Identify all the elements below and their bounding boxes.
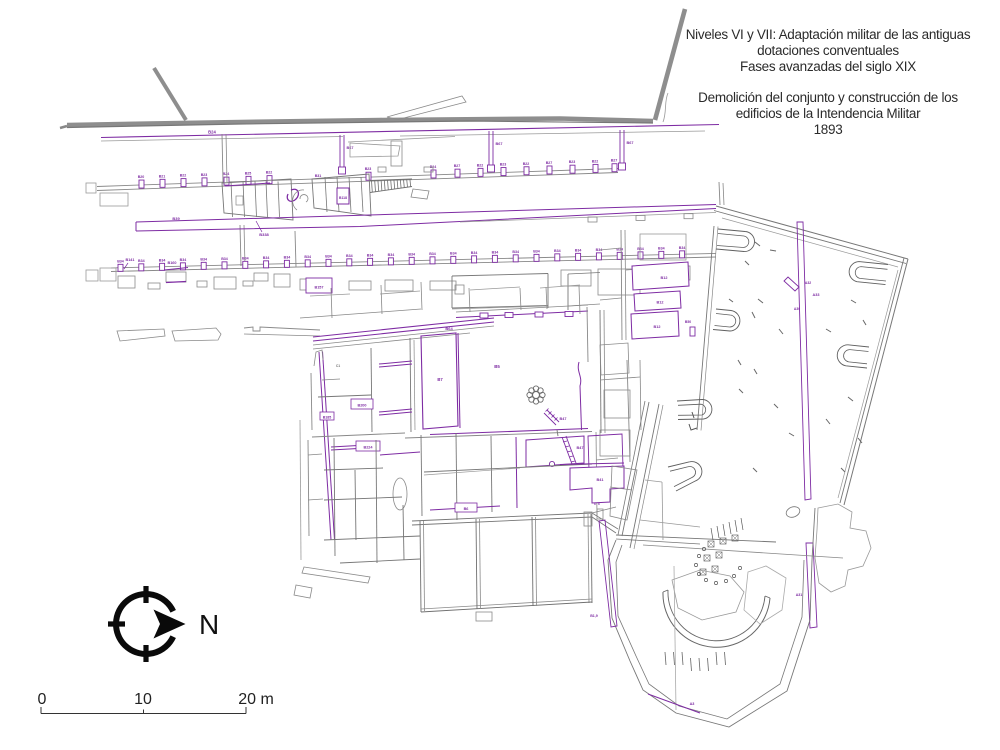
svg-text:B34: B34 bbox=[512, 250, 519, 254]
svg-text:Fases avanzadas del siglo XIX: Fases avanzadas del siglo XIX bbox=[740, 59, 916, 74]
svg-text:B21: B21 bbox=[159, 174, 166, 178]
svg-text:B34: B34 bbox=[221, 257, 228, 261]
svg-text:B224: B224 bbox=[363, 446, 373, 450]
svg-text:B34: B34 bbox=[471, 251, 478, 255]
svg-text:Demolición del conjunto y cons: Demolición del conjunto y construcción d… bbox=[698, 90, 958, 105]
svg-text:0: 0 bbox=[38, 691, 47, 708]
svg-text:10: 10 bbox=[134, 691, 152, 708]
svg-text:B31: B31 bbox=[315, 174, 322, 178]
svg-text:B67: B67 bbox=[496, 142, 503, 146]
svg-text:B160: B160 bbox=[167, 261, 176, 265]
svg-text:B185: B185 bbox=[323, 416, 332, 420]
svg-text:B6: B6 bbox=[464, 507, 469, 511]
svg-text:B50: B50 bbox=[685, 320, 691, 324]
svg-text:B7: B7 bbox=[437, 377, 443, 382]
svg-text:B34: B34 bbox=[325, 254, 332, 258]
svg-text:B39: B39 bbox=[172, 216, 180, 221]
svg-text:B12: B12 bbox=[661, 276, 668, 280]
svg-text:B34: B34 bbox=[679, 246, 686, 250]
svg-text:A33: A33 bbox=[813, 293, 820, 297]
svg-text:B34: B34 bbox=[346, 254, 353, 258]
svg-text:Niveles VI y VII: Adaptación m: Niveles VI y VII: Adaptación militar de … bbox=[686, 27, 971, 42]
svg-text:B20: B20 bbox=[138, 175, 145, 179]
svg-text:A31: A31 bbox=[796, 593, 803, 597]
svg-text:B12: B12 bbox=[654, 325, 661, 329]
svg-text:B34: B34 bbox=[263, 256, 270, 260]
svg-text:B34: B34 bbox=[637, 247, 644, 251]
svg-text:B34: B34 bbox=[450, 251, 457, 255]
svg-text:B34: B34 bbox=[408, 252, 415, 256]
svg-text:20 m: 20 m bbox=[238, 691, 274, 708]
svg-text:B22: B22 bbox=[523, 162, 530, 166]
svg-text:B338: B338 bbox=[259, 232, 269, 237]
svg-text:B27: B27 bbox=[546, 161, 553, 165]
svg-text:B23: B23 bbox=[569, 160, 576, 164]
svg-text:B34: B34 bbox=[429, 252, 436, 256]
svg-text:B22: B22 bbox=[592, 159, 599, 163]
svg-text:B34: B34 bbox=[388, 253, 395, 257]
svg-text:B141: B141 bbox=[125, 258, 134, 262]
svg-text:B34: B34 bbox=[554, 249, 561, 253]
svg-text:B12: B12 bbox=[657, 301, 664, 305]
svg-text:B157: B157 bbox=[314, 286, 323, 290]
svg-text:B47: B47 bbox=[577, 446, 584, 450]
svg-text:B34: B34 bbox=[242, 256, 249, 260]
svg-text:B22: B22 bbox=[180, 174, 187, 178]
svg-text:B34: B34 bbox=[575, 248, 582, 252]
svg-text:B23: B23 bbox=[201, 173, 208, 177]
svg-text:C1: C1 bbox=[336, 364, 340, 368]
svg-text:B67: B67 bbox=[627, 141, 634, 145]
svg-text:B34: B34 bbox=[159, 258, 166, 262]
svg-text:B24: B24 bbox=[223, 172, 230, 176]
svg-text:B47: B47 bbox=[560, 417, 567, 421]
svg-text:B34: B34 bbox=[180, 258, 187, 262]
svg-text:B34: B34 bbox=[367, 253, 374, 257]
svg-text:B34: B34 bbox=[304, 255, 311, 259]
svg-text:B24: B24 bbox=[208, 130, 216, 135]
svg-text:B34: B34 bbox=[658, 246, 665, 250]
svg-text:B1,9: B1,9 bbox=[590, 614, 598, 618]
svg-text:A32: A32 bbox=[805, 281, 811, 285]
svg-text:B41: B41 bbox=[597, 478, 604, 482]
svg-text:B34: B34 bbox=[138, 259, 145, 263]
svg-text:B34: B34 bbox=[200, 257, 207, 261]
svg-text:B23: B23 bbox=[500, 163, 507, 167]
svg-text:B23: B23 bbox=[365, 167, 372, 171]
svg-text:A30: A30 bbox=[794, 307, 800, 311]
svg-text:B200: B200 bbox=[357, 404, 366, 408]
svg-text:B34: B34 bbox=[117, 259, 124, 263]
svg-text:B34: B34 bbox=[492, 250, 499, 254]
svg-text:1893: 1893 bbox=[814, 122, 843, 137]
svg-text:edificios de la Intendencia Mi: edificios de la Intendencia Militar bbox=[736, 106, 921, 121]
svg-text:B22: B22 bbox=[266, 171, 273, 175]
svg-text:B5: B5 bbox=[494, 364, 500, 369]
svg-text:dotaciones conventuales: dotaciones conventuales bbox=[757, 43, 899, 58]
svg-text:B34: B34 bbox=[533, 249, 540, 253]
svg-text:B34: B34 bbox=[284, 255, 291, 259]
svg-text:B118: B118 bbox=[339, 196, 347, 200]
svg-text:B25: B25 bbox=[245, 171, 252, 175]
svg-text:B22: B22 bbox=[477, 163, 484, 167]
svg-text:A3: A3 bbox=[690, 702, 695, 706]
svg-text:B27: B27 bbox=[611, 159, 618, 163]
svg-text:B27: B27 bbox=[454, 164, 461, 168]
svg-text:N: N bbox=[199, 609, 219, 640]
